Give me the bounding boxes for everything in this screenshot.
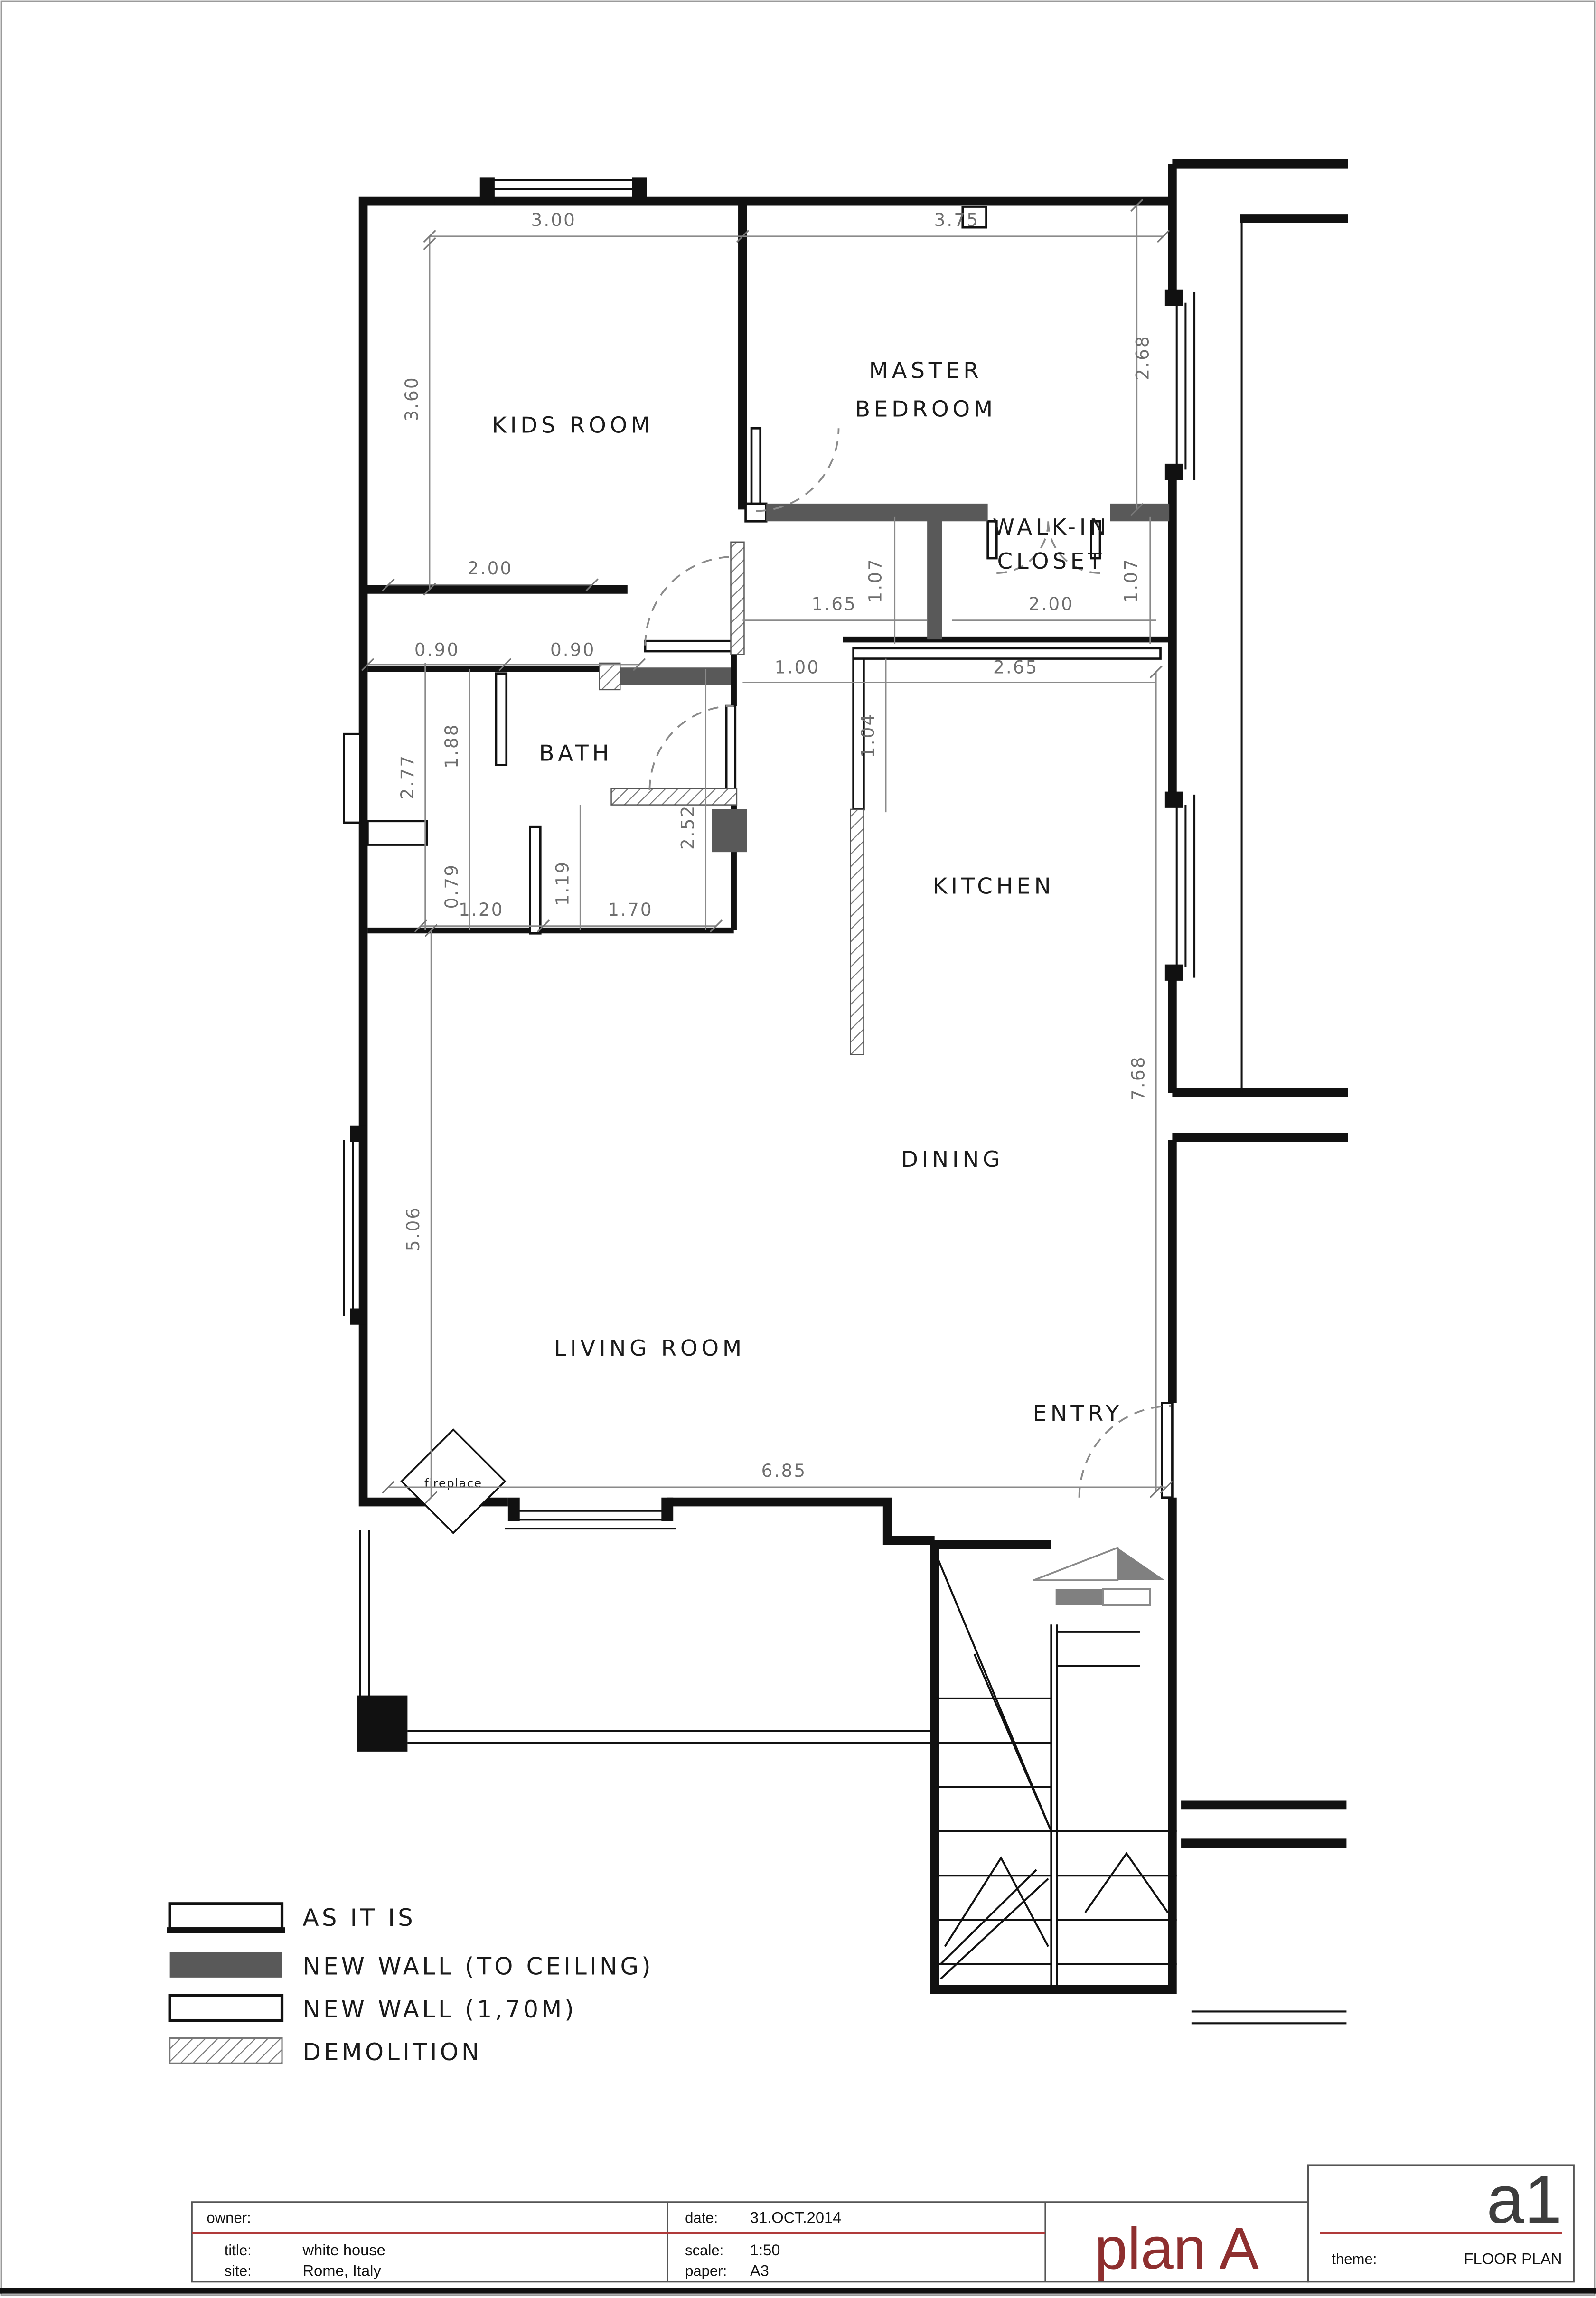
dim-bath-inner: 1.19 — [552, 861, 573, 906]
sheet-code: a1 — [1486, 2161, 1562, 2237]
floor-plan-svg: fireplace KIDS ROOM MASTER BEDROOM WALK-… — [0, 0, 1596, 2298]
room-label-closet-1: WALK-IN — [993, 515, 1110, 540]
dim-kitchen-wall: 1.04 — [857, 713, 878, 759]
dim-kids-bottom: 2.00 — [468, 558, 513, 579]
fireplace-icon: fireplace — [402, 1430, 505, 1533]
new-thin-walls — [344, 207, 1173, 1498]
room-label-entry: ENTRY — [1033, 1401, 1123, 1426]
legend-item-as-it-is: AS IT IS — [167, 1904, 415, 1932]
legend-swatch-as-it-is-icon — [170, 1904, 282, 1929]
dim-hall-width: 1.65 — [811, 593, 857, 614]
dim-bath-bottom-left: 1.20 — [459, 899, 504, 920]
legend-item-new-wall-to-ceiling: NEW WALL (TO CEILING) — [170, 1952, 654, 1980]
page-bottom-rule — [0, 2288, 1596, 2293]
site-value: Rome, Italy — [303, 2261, 382, 2279]
legend-item-demolition: DEMOLITION — [170, 2038, 482, 2066]
paper-value: A3 — [750, 2261, 769, 2279]
dim-bath-top-right: 0.90 — [550, 639, 596, 660]
legend-swatch-new-wall-ceiling-icon — [170, 1952, 282, 1978]
date-value: 31.OCT.2014 — [750, 2208, 841, 2226]
legend-swatch-demolition-icon — [170, 2038, 282, 2063]
legend-label-as-it-is: AS IT IS — [303, 1904, 416, 1932]
fireplace-label: fireplace — [424, 1476, 482, 1490]
entry-arrow-icon — [1033, 1548, 1165, 1605]
window-caps — [350, 177, 1183, 1752]
dim-closet-width: 2.00 — [1029, 593, 1074, 614]
thin-linework — [344, 180, 1347, 2024]
theme-label: theme: — [1332, 2251, 1377, 2267]
dim-hall-height-left: 1.07 — [865, 558, 886, 603]
dim-kitchen-top: 2.65 — [993, 657, 1039, 678]
room-label-dining: DINING — [901, 1147, 1004, 1172]
dimension-ticks — [362, 199, 1172, 1503]
dim-bath-left-outer: 2.77 — [397, 754, 418, 800]
title-label: title: — [225, 2242, 252, 2259]
dim-corridor-width: 1.00 — [775, 657, 820, 678]
room-label-bath: BATH — [539, 741, 612, 766]
legend-label-demolition: DEMOLITION — [303, 2038, 482, 2066]
dim-bath-right: 2.52 — [677, 804, 698, 850]
dim-kitchen-dining-right: 7.68 — [1127, 1055, 1148, 1101]
room-label-closet-2: CLOSET — [997, 549, 1105, 574]
scale-label: scale: — [685, 2242, 723, 2259]
dimension-lines — [367, 205, 1166, 1497]
date-label: date: — [685, 2209, 718, 2226]
legend-label-new-wall-ceiling: NEW WALL (TO CEILING) — [303, 1953, 654, 1980]
legend-label-new-wall-170: NEW WALL (1,70M) — [303, 1996, 577, 2023]
title-block: owner: title: white house site: Rome, It… — [192, 2161, 1574, 2281]
dim-living-bottom: 6.85 — [761, 1460, 807, 1481]
dim-bath-top-left: 0.90 — [414, 639, 460, 660]
legend-item-new-wall-170: NEW WALL (1,70M) — [170, 1995, 577, 2023]
room-label-kitchen: KITCHEN — [933, 873, 1054, 899]
room-label-living: LIVING ROOM — [554, 1336, 745, 1361]
scale-value: 1:50 — [750, 2241, 780, 2259]
paper-label: paper: — [685, 2262, 727, 2279]
room-label-master-2: BEDROOM — [855, 396, 996, 422]
demolition-walls — [600, 542, 864, 1055]
owner-label: owner: — [207, 2209, 251, 2226]
dim-bath-bottom-right: 1.70 — [608, 899, 653, 920]
dim-kids-top: 3.00 — [531, 209, 577, 230]
dim-living-left: 5.06 — [403, 1206, 423, 1252]
plan-name: plan A — [1095, 2215, 1259, 2281]
room-label-kids: KIDS ROOM — [492, 413, 654, 439]
drawing-sheet: fireplace KIDS ROOM MASTER BEDROOM WALK-… — [0, 0, 1596, 2298]
dim-bath-left-upper: 1.88 — [441, 723, 462, 769]
legend-swatch-new-wall-170-icon — [170, 1995, 282, 2020]
page-border — [1, 1, 1595, 2295]
floor-plan: fireplace KIDS ROOM MASTER BEDROOM WALK-… — [344, 164, 1348, 2023]
title-value: white house — [302, 2241, 385, 2259]
theme-value: FLOOR PLAN — [1464, 2250, 1562, 2267]
dim-master-top: 3.75 — [934, 209, 980, 230]
dim-master-right: 2.68 — [1132, 335, 1153, 380]
dim-closet-height-right: 1.07 — [1120, 558, 1141, 603]
site-label: site: — [225, 2262, 252, 2279]
dim-kids-left: 3.60 — [401, 376, 422, 422]
legend: AS IT IS NEW WALL (TO CEILING) NEW WALL … — [167, 1904, 653, 2066]
room-label-master-1: MASTER — [869, 358, 983, 384]
